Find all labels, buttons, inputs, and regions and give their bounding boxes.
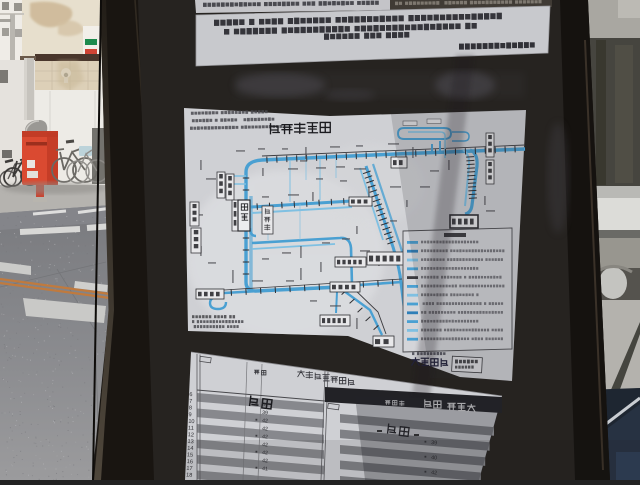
svg-text:42: 42 [262,426,268,432]
svg-text:42: 42 [262,418,268,424]
svg-text:12: 12 [187,432,194,438]
svg-text:7: 7 [189,399,193,405]
svg-text:11: 11 [188,426,194,432]
svg-text:10: 10 [188,419,195,425]
svg-text:42: 42 [262,434,268,440]
svg-text:39: 39 [262,410,268,416]
svg-text:6: 6 [189,392,193,398]
svg-text:9: 9 [188,412,192,418]
svg-text:39: 39 [262,402,268,408]
svg-text:8: 8 [189,405,193,411]
